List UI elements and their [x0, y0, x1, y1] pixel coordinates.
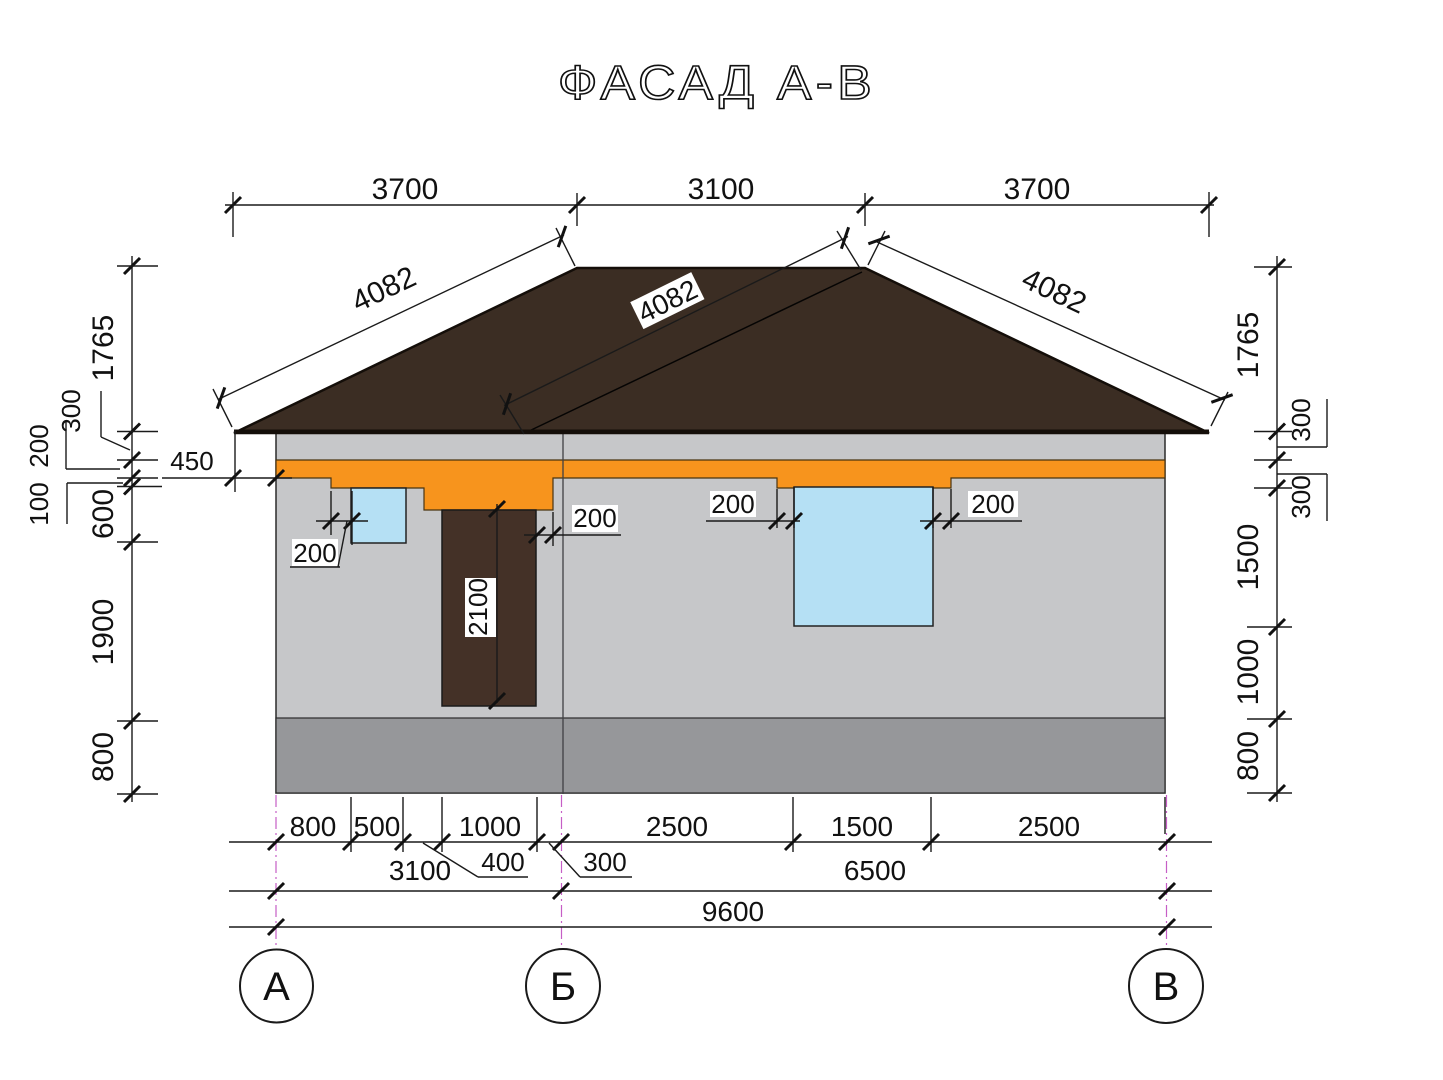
- svg-text:1900: 1900: [87, 599, 120, 666]
- svg-text:200: 200: [971, 489, 1014, 519]
- svg-text:800: 800: [87, 732, 120, 782]
- svg-text:200: 200: [711, 489, 754, 519]
- svg-text:9600: 9600: [702, 896, 764, 927]
- svg-text:2500: 2500: [1018, 811, 1080, 842]
- svg-text:800: 800: [290, 811, 337, 842]
- svg-text:1500: 1500: [1232, 524, 1265, 591]
- svg-text:3700: 3700: [1004, 173, 1071, 206]
- svg-text:3100: 3100: [389, 855, 451, 886]
- svg-text:300: 300: [56, 389, 86, 432]
- svg-text:800: 800: [1232, 731, 1265, 781]
- svg-text:1000: 1000: [459, 811, 521, 842]
- svg-text:450: 450: [170, 446, 213, 476]
- svg-text:2100: 2100: [463, 578, 493, 636]
- svg-text:В: В: [1153, 965, 1180, 1009]
- svg-text:400: 400: [481, 847, 524, 877]
- svg-text:200: 200: [24, 424, 54, 467]
- svg-text:ФАСАД А-В: ФАСАД А-В: [558, 57, 876, 110]
- svg-text:1765: 1765: [1232, 312, 1265, 379]
- svg-text:300: 300: [1286, 398, 1316, 441]
- svg-text:300: 300: [583, 847, 626, 877]
- svg-text:200: 200: [293, 538, 336, 568]
- svg-text:Б: Б: [550, 965, 576, 1009]
- svg-text:600: 600: [87, 489, 120, 539]
- svg-text:3100: 3100: [688, 173, 755, 206]
- svg-text:1765: 1765: [87, 315, 120, 382]
- svg-text:500: 500: [354, 811, 401, 842]
- svg-text:3700: 3700: [372, 173, 439, 206]
- svg-text:2500: 2500: [646, 811, 708, 842]
- svg-text:100: 100: [24, 482, 54, 525]
- svg-text:1000: 1000: [1232, 639, 1265, 706]
- svg-text:300: 300: [1286, 475, 1316, 518]
- svg-text:6500: 6500: [844, 855, 906, 886]
- svg-text:1500: 1500: [831, 811, 893, 842]
- svg-text:А: А: [263, 965, 290, 1009]
- svg-text:200: 200: [573, 503, 616, 533]
